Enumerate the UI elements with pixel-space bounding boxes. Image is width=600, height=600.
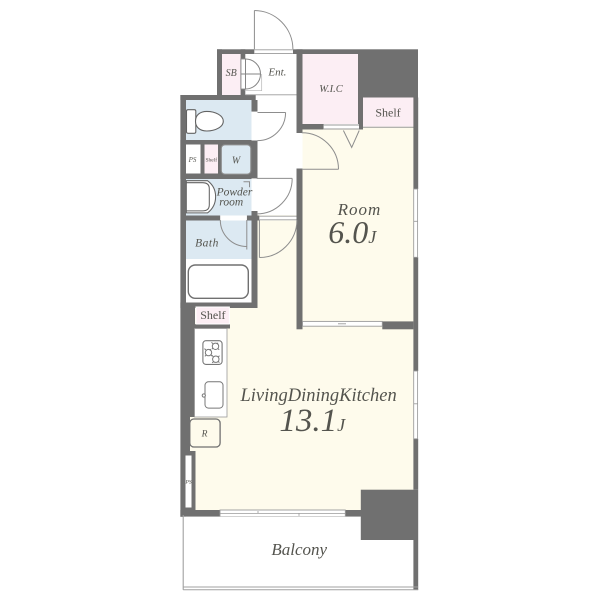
svg-text:PS: PS xyxy=(185,480,192,486)
svg-text:R: R xyxy=(201,430,208,440)
svg-text:PS: PS xyxy=(188,156,197,164)
svg-text:Bath: Bath xyxy=(195,238,219,250)
svg-text:W.I.C: W.I.C xyxy=(319,84,344,95)
svg-text:SB: SB xyxy=(226,68,237,79)
svg-text:Balcony: Balcony xyxy=(271,540,327,559)
svg-text:Shelf: Shelf xyxy=(375,106,400,120)
svg-text:13.1J: 13.1J xyxy=(279,403,346,439)
svg-text:Shelf: Shelf xyxy=(200,308,225,322)
svg-text:Shelf: Shelf xyxy=(205,157,217,164)
svg-text:room: room xyxy=(219,196,243,208)
svg-text:Ent.: Ent. xyxy=(267,67,286,79)
